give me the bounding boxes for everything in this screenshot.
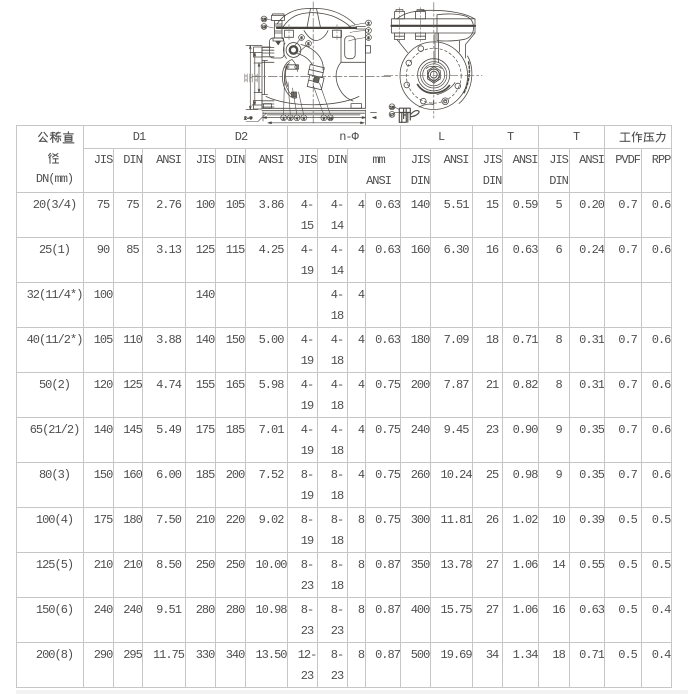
svg-text:5: 5	[289, 117, 291, 121]
svg-text:2-Φ: 2-Φ	[244, 115, 253, 121]
svg-text:13: 13	[262, 19, 266, 23]
svg-text:6: 6	[300, 37, 302, 41]
svg-text:8: 8	[367, 37, 369, 41]
svg-text:17: 17	[390, 114, 394, 118]
svg-text:10: 10	[328, 117, 332, 121]
svg-text:3: 3	[303, 117, 305, 121]
svg-text:16: 16	[390, 106, 394, 110]
svg-text:5: 5	[307, 43, 309, 47]
svg-text:7: 7	[367, 30, 369, 34]
svg-text:4: 4	[296, 117, 299, 121]
svg-text:2: 2	[282, 117, 284, 121]
svg-text:12: 12	[262, 26, 266, 30]
svg-text:9: 9	[323, 117, 325, 121]
svg-text:2: 2	[367, 23, 369, 27]
